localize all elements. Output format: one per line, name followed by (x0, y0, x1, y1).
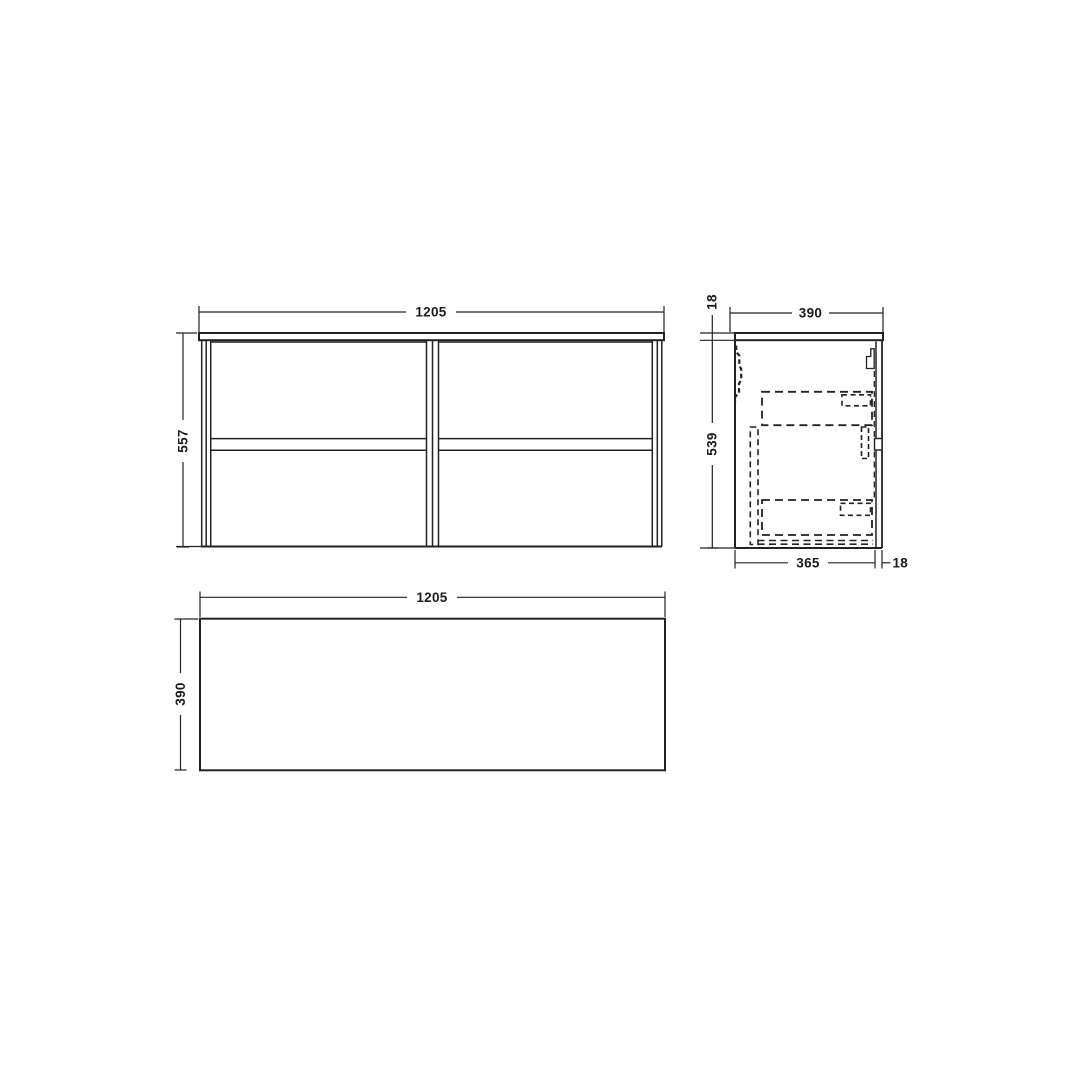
plan-width-dimension: 1205 (200, 590, 665, 617)
side-top-width-label: 390 (799, 306, 822, 321)
front-view: 1205 557 (176, 305, 665, 548)
side-depth-label: 365 (796, 555, 820, 570)
front-carcass (176, 341, 662, 547)
side-top-rail-profile (867, 349, 875, 369)
lower-drawer-box-hidden (762, 500, 872, 535)
upper-drawer-box-hidden (762, 392, 872, 425)
front-worktop (199, 333, 664, 340)
plan-view: 1205 390 (173, 590, 665, 771)
front-height-dimension: 557 (176, 333, 198, 547)
side-carcass (700, 340, 882, 548)
side-hidden-details (735, 346, 874, 545)
front-drawer-fronts (211, 341, 653, 547)
lower-drawer-runner-hidden (841, 503, 871, 515)
side-bottom-dimension: 365 18 (735, 550, 908, 571)
side-carcass-height-label: 539 (705, 432, 720, 455)
plan-worktop-outline (200, 619, 665, 771)
side-worktop (735, 333, 883, 340)
front-height-label: 557 (176, 429, 191, 452)
side-view: 390 18 539 (700, 289, 908, 571)
front-width-dimension: 1205 (199, 305, 664, 333)
plan-depth-label: 390 (173, 682, 188, 705)
upper-drawer-runner-hidden (842, 395, 871, 406)
side-drawer-gap (875, 439, 883, 451)
back-support-hidden (750, 427, 758, 545)
wall-bracket-hidden (735, 346, 741, 403)
front-width-label: 1205 (415, 305, 446, 320)
plan-width-label: 1205 (416, 590, 447, 605)
side-top-width-dimension: 390 (730, 306, 883, 333)
technical-drawing-sheet: 1205 557 (0, 0, 1080, 1080)
mid-rail-hidden (862, 427, 869, 459)
side-worktop-thickness-label: 18 (705, 294, 720, 310)
plan-depth-dimension: 390 (173, 619, 198, 770)
side-front-thickness-label: 18 (893, 555, 909, 570)
vanity-unit-dimension-drawing: 1205 557 (0, 0, 1080, 1080)
